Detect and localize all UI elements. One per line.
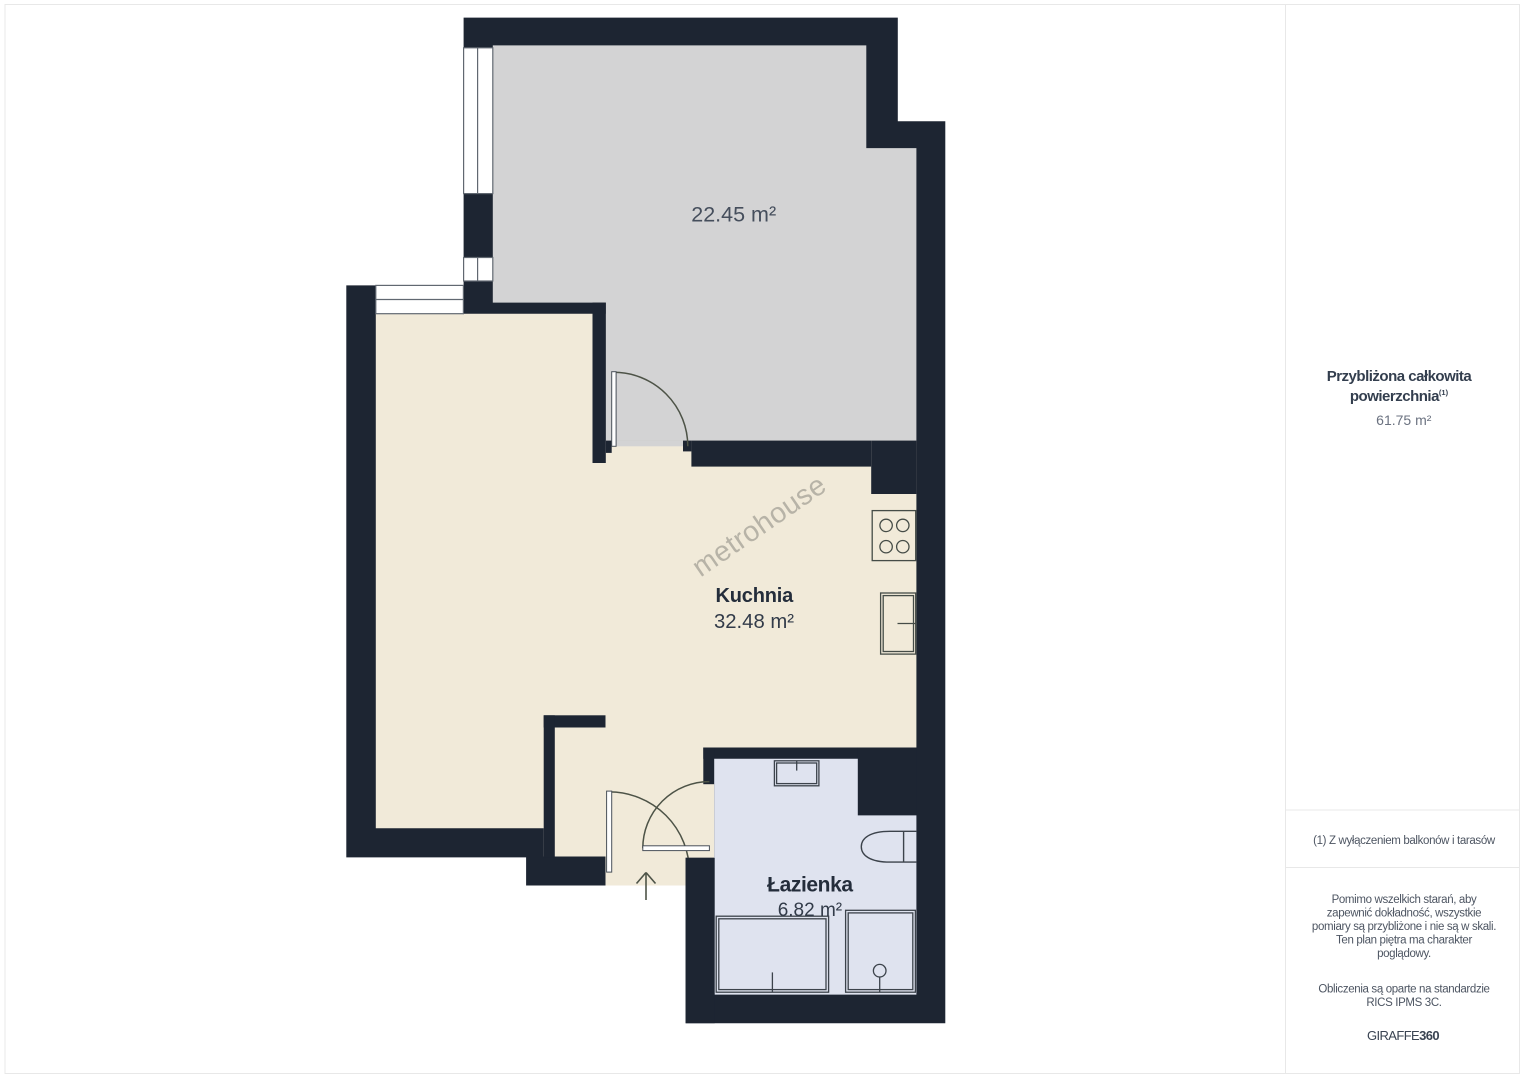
svg-text:6.82 m²: 6.82 m² (778, 900, 842, 921)
svg-text:Łazienka: Łazienka (767, 874, 853, 897)
svg-text:(1) Z wyłączeniem balkonów i t: (1) Z wyłączeniem balkonów i tarasów (1313, 835, 1496, 847)
svg-text:61.75 m²: 61.75 m² (1376, 412, 1432, 428)
svg-text:Kuchnia: Kuchnia (716, 585, 795, 607)
svg-text:32.48 m²: 32.48 m² (714, 611, 794, 633)
svg-text:22.45 m²: 22.45 m² (691, 203, 776, 227)
svg-text:pomiary są przybliżone i nie s: pomiary są przybliżone i nie są w skali. (1312, 921, 1496, 933)
svg-text:GIRAFFE360: GIRAFFE360 (1367, 1028, 1439, 1043)
svg-text:zapewnić dokładność, wszystkie: zapewnić dokładność, wszystkie (1327, 908, 1481, 920)
svg-text:poglądowy.: poglądowy. (1377, 948, 1431, 960)
svg-text:RICS IPMS 3C.: RICS IPMS 3C. (1366, 997, 1441, 1009)
svg-text:Pomimo wszelkich starań, aby: Pomimo wszelkich starań, aby (1332, 894, 1477, 906)
svg-text:Ten plan piętra ma charakter: Ten plan piętra ma charakter (1336, 935, 1472, 947)
svg-text:Przybliżona całkowita: Przybliżona całkowita (1327, 368, 1473, 385)
svg-text:powierzchnia(1): powierzchnia(1) (1350, 388, 1449, 405)
svg-text:Obliczenia są oparte na standa: Obliczenia są oparte na standardzie (1318, 984, 1489, 996)
